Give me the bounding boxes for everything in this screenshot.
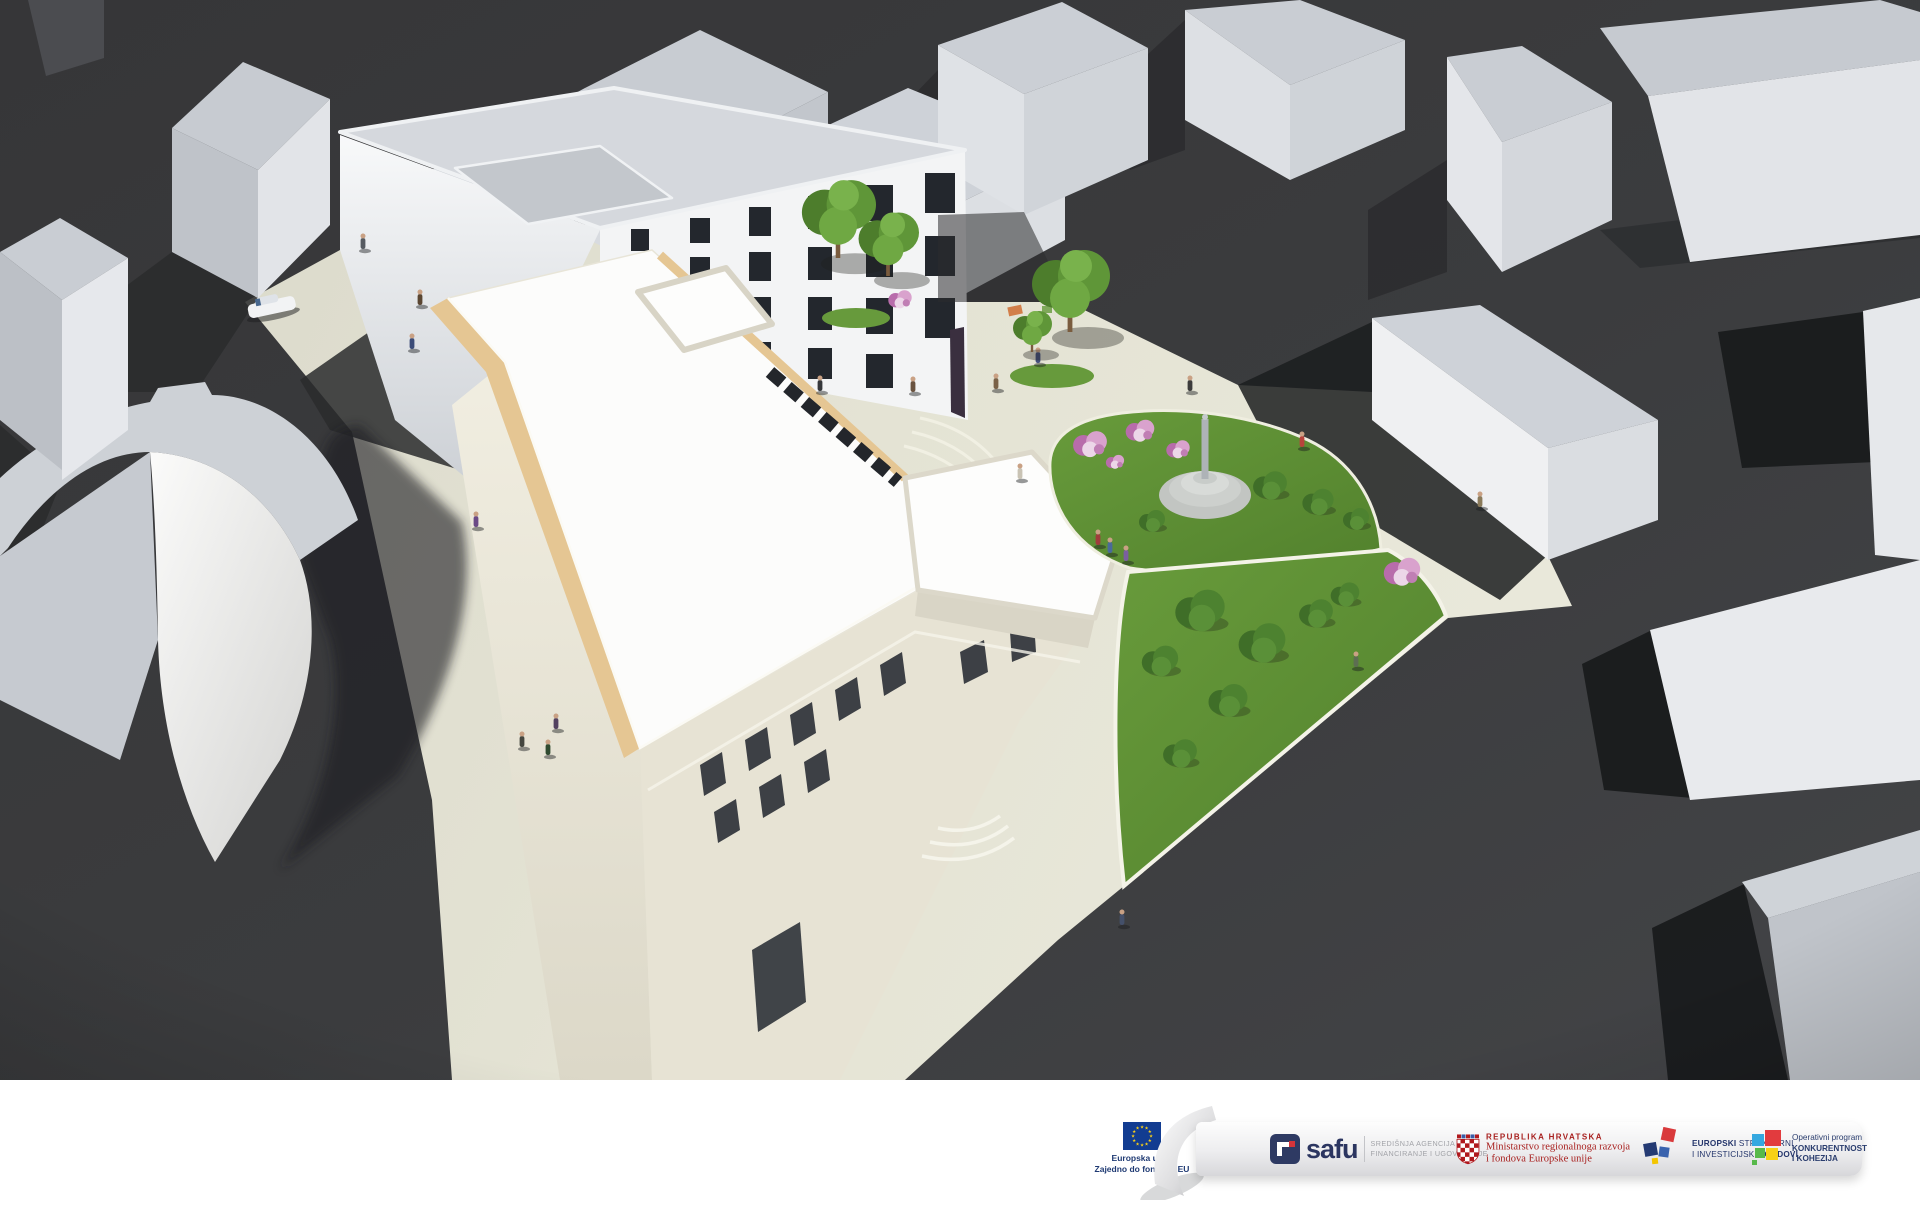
opkk-text: Operativni program KONKURENTNOST I KOHEZ… xyxy=(1792,1133,1867,1165)
eu-funds-line2-pre: I INVESTICIJSKI xyxy=(1692,1150,1759,1159)
vignette xyxy=(0,0,1920,1080)
opkk-squares-icon xyxy=(1752,1130,1786,1168)
croatia-line3: i fondova Europske unije xyxy=(1486,1154,1630,1166)
eu-funds-squares-icon xyxy=(1642,1127,1686,1171)
safu-icon xyxy=(1270,1134,1300,1164)
croatia-line1: REPUBLIKA HRVATSKA xyxy=(1486,1132,1630,1141)
eu-funds-line1-bold: EUROPSKI xyxy=(1692,1139,1736,1148)
croatia-ministry-logo: REPUBLIKA HRVATSKA Ministarstvo regional… xyxy=(1456,1132,1630,1165)
opkk-line3: I KOHEZIJA xyxy=(1792,1154,1867,1165)
croatia-line2: Ministarstvo regionalnoga razvoja xyxy=(1486,1142,1630,1154)
opkk-logo: Operativni program KONKURENTNOST I KOHEZ… xyxy=(1752,1130,1867,1168)
logo-band: ★★★ ★★★ ★★★ ★★★ Europska unija Zajedno d… xyxy=(0,1080,1920,1215)
opkk-line1: Operativni program xyxy=(1792,1133,1867,1144)
safu-wordmark: safu xyxy=(1306,1136,1358,1163)
opkk-line2: KONKURENTNOST xyxy=(1792,1144,1867,1155)
architectural-rendering-page: ★★★ ★★★ ★★★ ★★★ Europska unija Zajedno d… xyxy=(0,0,1920,1215)
divider xyxy=(1364,1136,1365,1162)
safu-agency-line1: SREDIŠNJA AGENCIJA ZA xyxy=(1371,1139,1468,1148)
aerial-render-scene xyxy=(0,0,1920,1080)
croatia-coat-of-arms-icon xyxy=(1456,1134,1480,1164)
croatia-ministry-text: REPUBLIKA HRVATSKA Ministarstvo regional… xyxy=(1486,1132,1630,1165)
logo-ribbon: safu SREDIŠNJA AGENCIJA ZA FINANCIRANJE … xyxy=(1196,1122,1862,1176)
